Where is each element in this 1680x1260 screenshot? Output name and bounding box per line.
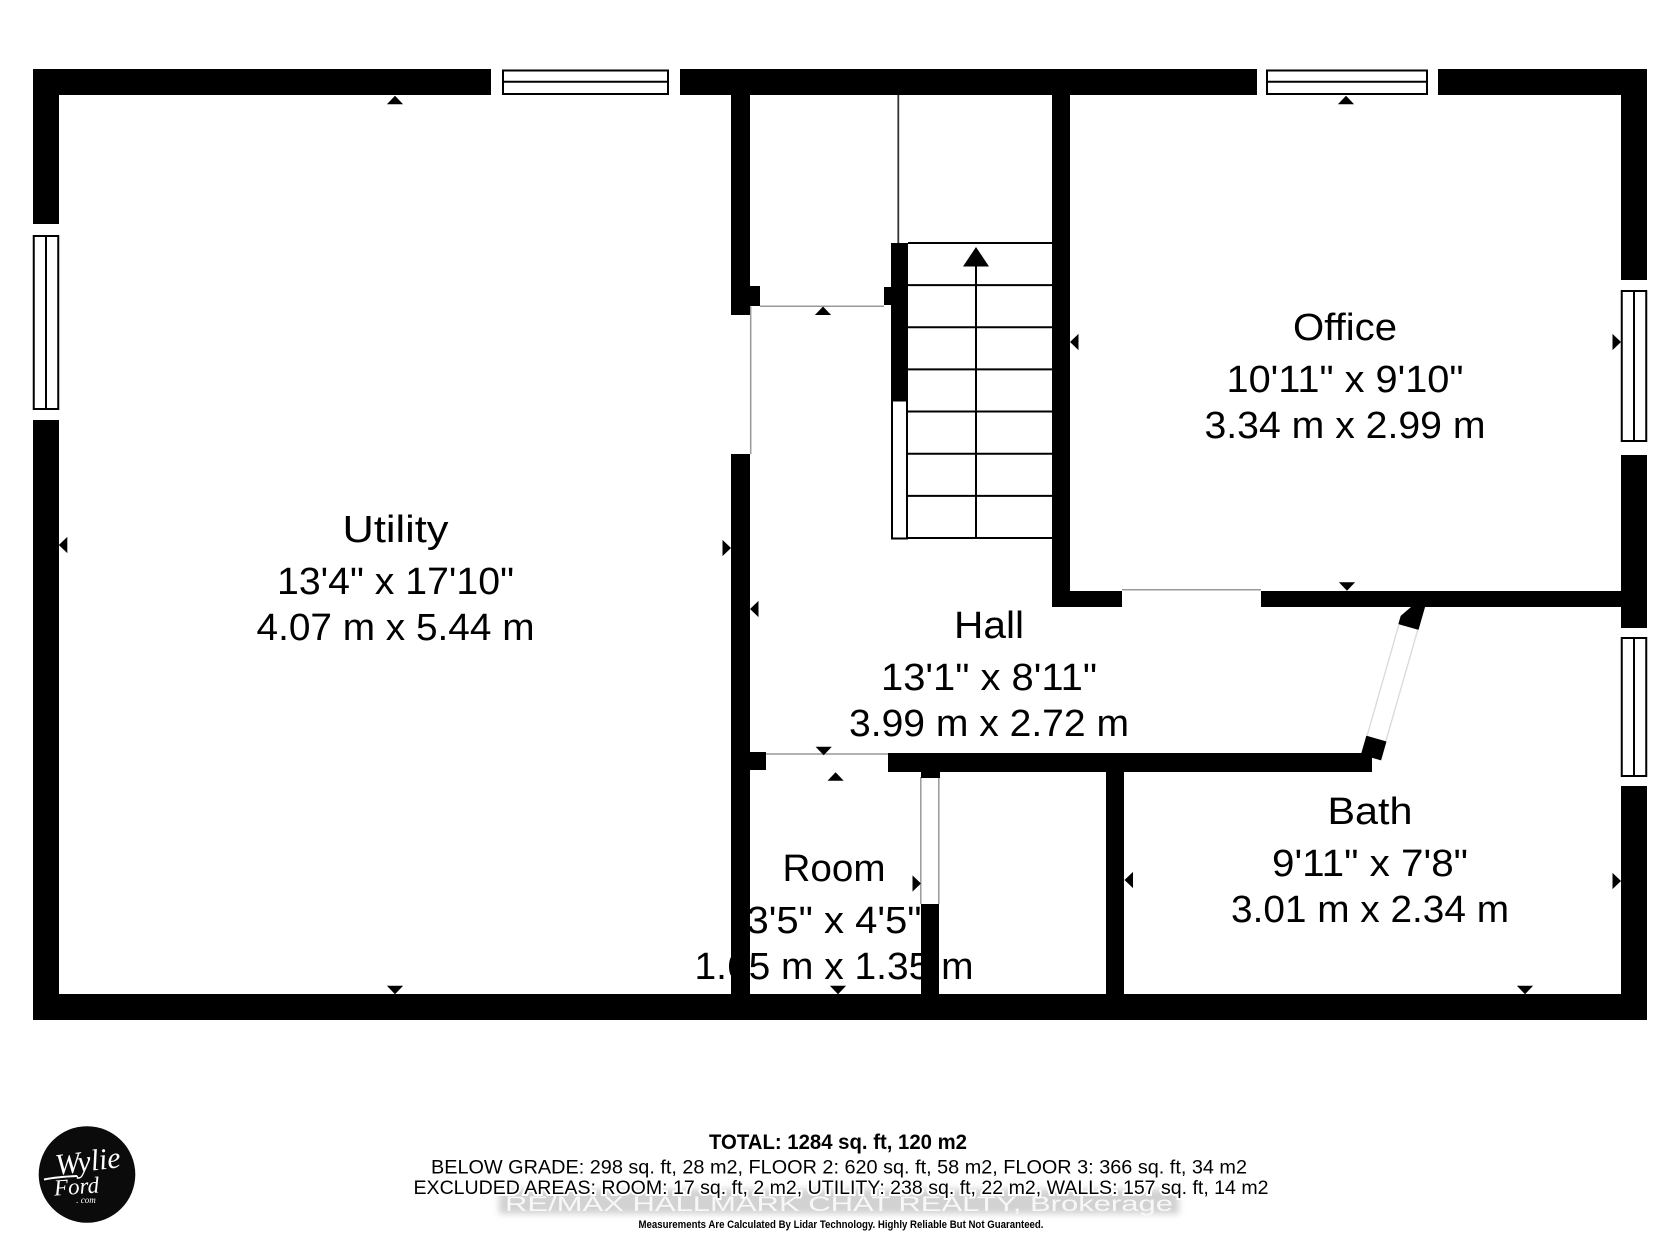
svg-text:EXCLUDED AREAS: ROOM: 17 sq. f: EXCLUDED AREAS: ROOM: 17 sq. ft, 2 m2, U…	[414, 1178, 1269, 1199]
svg-text:BELOW GRADE: 298 sq. ft, 28 m2: BELOW GRADE: 298 sq. ft, 28 m2, FLOOR 2:…	[431, 1157, 1247, 1178]
svg-text:13'1" x 8'11": 13'1" x 8'11"	[881, 657, 1097, 699]
svg-text:Hall: Hall	[954, 605, 1024, 647]
svg-text:3.34 m x 2.99 m: 3.34 m x 2.99 m	[1205, 405, 1486, 447]
svg-text:3.99 m x 2.72 m: 3.99 m x 2.72 m	[849, 703, 1129, 745]
svg-text:Bath: Bath	[1328, 791, 1413, 833]
svg-text:13'4" x 17'10": 13'4" x 17'10"	[277, 561, 514, 603]
svg-text:10'11" x 9'10": 10'11" x 9'10"	[1227, 359, 1464, 401]
svg-text:TOTAL: 1284 sq. ft, 120 m2: TOTAL: 1284 sq. ft, 120 m2	[709, 1131, 967, 1154]
svg-text:Office: Office	[1293, 307, 1397, 349]
svg-text:3'5" x 4'5": 3'5" x 4'5"	[747, 900, 922, 942]
svg-text:Room: Room	[783, 848, 886, 890]
svg-text:3.01 m x 2.34 m: 3.01 m x 2.34 m	[1231, 889, 1509, 931]
svg-text:. com: . com	[76, 1195, 96, 1205]
svg-text:9'11" x 7'8": 9'11" x 7'8"	[1272, 843, 1468, 885]
svg-text:Utility: Utility	[343, 509, 449, 551]
svg-text:4.07 m x 5.44 m: 4.07 m x 5.44 m	[257, 607, 535, 649]
svg-text:Measurements Are Calculated By: Measurements Are Calculated By Lidar Tec…	[639, 1219, 1044, 1231]
